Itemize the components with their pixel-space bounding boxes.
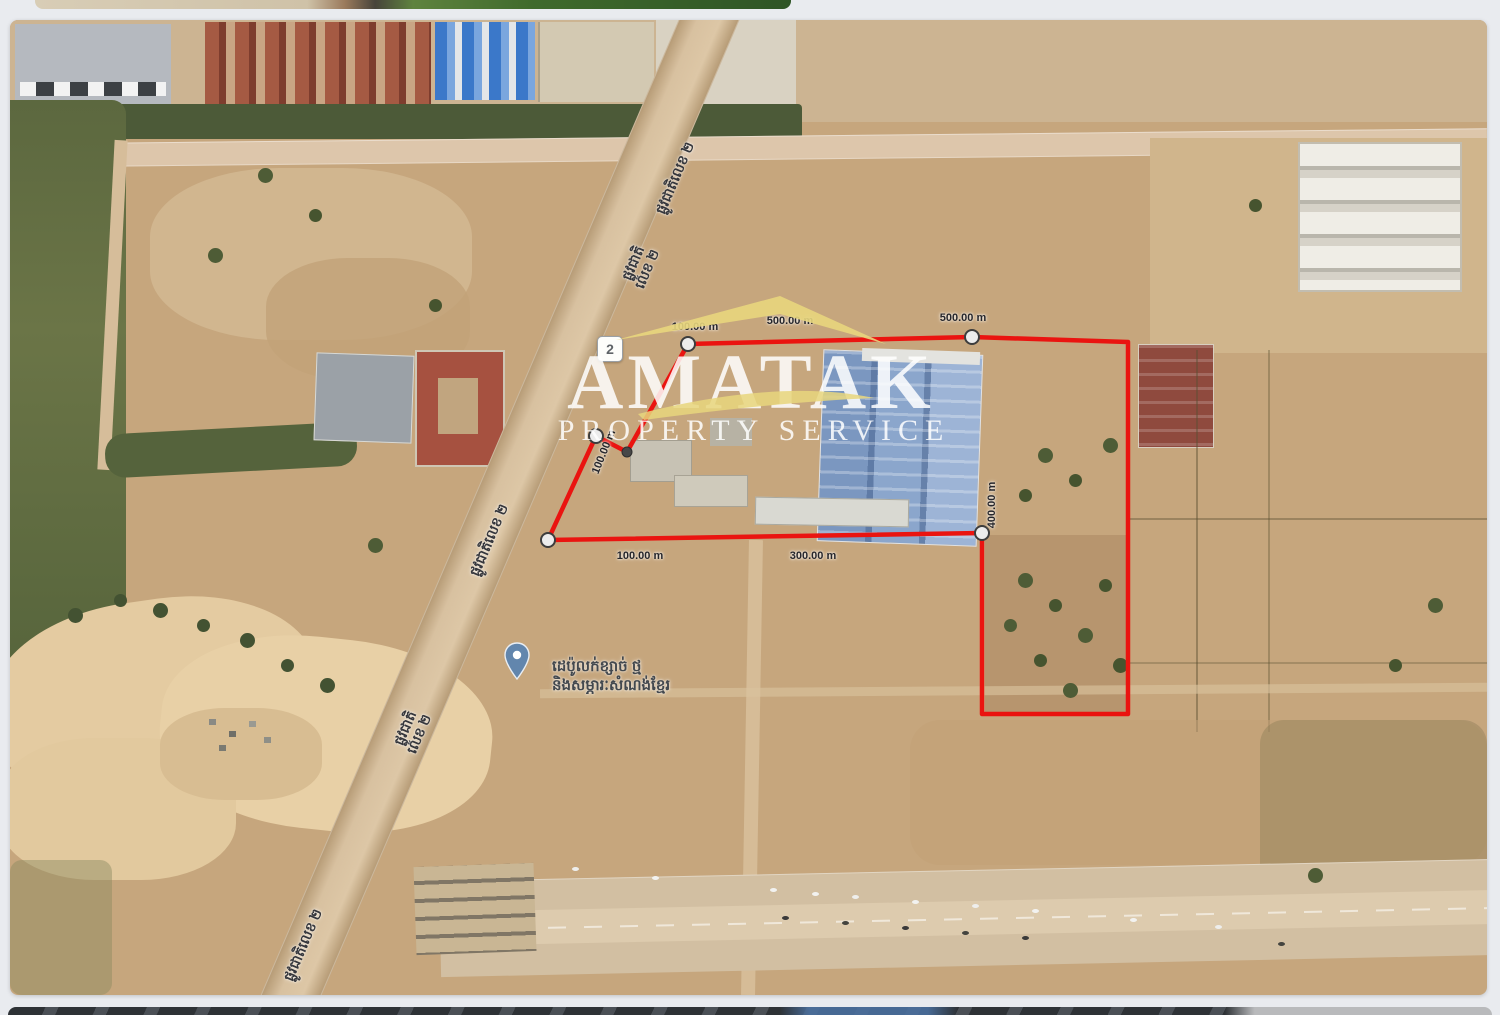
boundary-vertex (965, 330, 979, 344)
beige-building (538, 22, 654, 102)
measurement-label: 500.00 m (940, 312, 986, 324)
previous-photo-strip (35, 0, 791, 9)
poi-label-line2: និងសម្ភារៈសំណង់ខ្មែរ (552, 677, 670, 696)
field-line-h2 (1128, 662, 1487, 664)
measurement-label: 100.00 m (590, 428, 619, 476)
poi-label: ដេប៉ូលក់ខ្សាច់ ថ្ម និងសម្ភារៈសំណង់ខ្មែរ (552, 658, 670, 696)
gray-roof-building (313, 352, 414, 443)
warehouse-roof (15, 24, 171, 112)
white-long-building (755, 497, 909, 528)
right-compound (1298, 142, 1462, 292)
boundary-vertex (541, 533, 555, 547)
route-shield: 2 (597, 336, 623, 362)
field-line-h1 (1128, 518, 1487, 520)
route-shield-number: 2 (606, 341, 614, 357)
measurement-label: 300.00 m (790, 550, 836, 562)
sand-pit (160, 708, 322, 800)
watermark-roof-icon (616, 296, 886, 344)
satellite-map-image: 100.00 m 500.00 m 500.00 m 100.00 m 400.… (10, 20, 1487, 995)
red-roof-courtyard (438, 378, 478, 434)
maroon-building (1138, 344, 1214, 448)
bottom-left-scrub (10, 860, 112, 995)
highway (439, 859, 1487, 977)
container-yard-blue (435, 22, 535, 100)
small-building-2 (674, 475, 748, 507)
measurement-label: 100.00 m (672, 321, 718, 333)
warehouse-dock-trucks (20, 82, 166, 96)
map-pin-icon (504, 642, 530, 680)
parking-rows (414, 863, 537, 955)
small-building-3 (710, 418, 752, 446)
container-yard-red (205, 22, 431, 104)
field-line-v2 (1268, 350, 1270, 732)
poi-label-line1: ដេប៉ូលក់ខ្សាច់ ថ្ម (552, 658, 670, 677)
field-line-v1 (1196, 350, 1198, 732)
measurement-label: 500.00 m (767, 315, 813, 327)
measurement-label: 100.00 m (617, 550, 663, 562)
trees (10, 20, 21, 31)
next-photo-strip (8, 1007, 1492, 1015)
measurement-label: 400.00 m (986, 482, 998, 528)
boundary-vertex (681, 337, 695, 351)
